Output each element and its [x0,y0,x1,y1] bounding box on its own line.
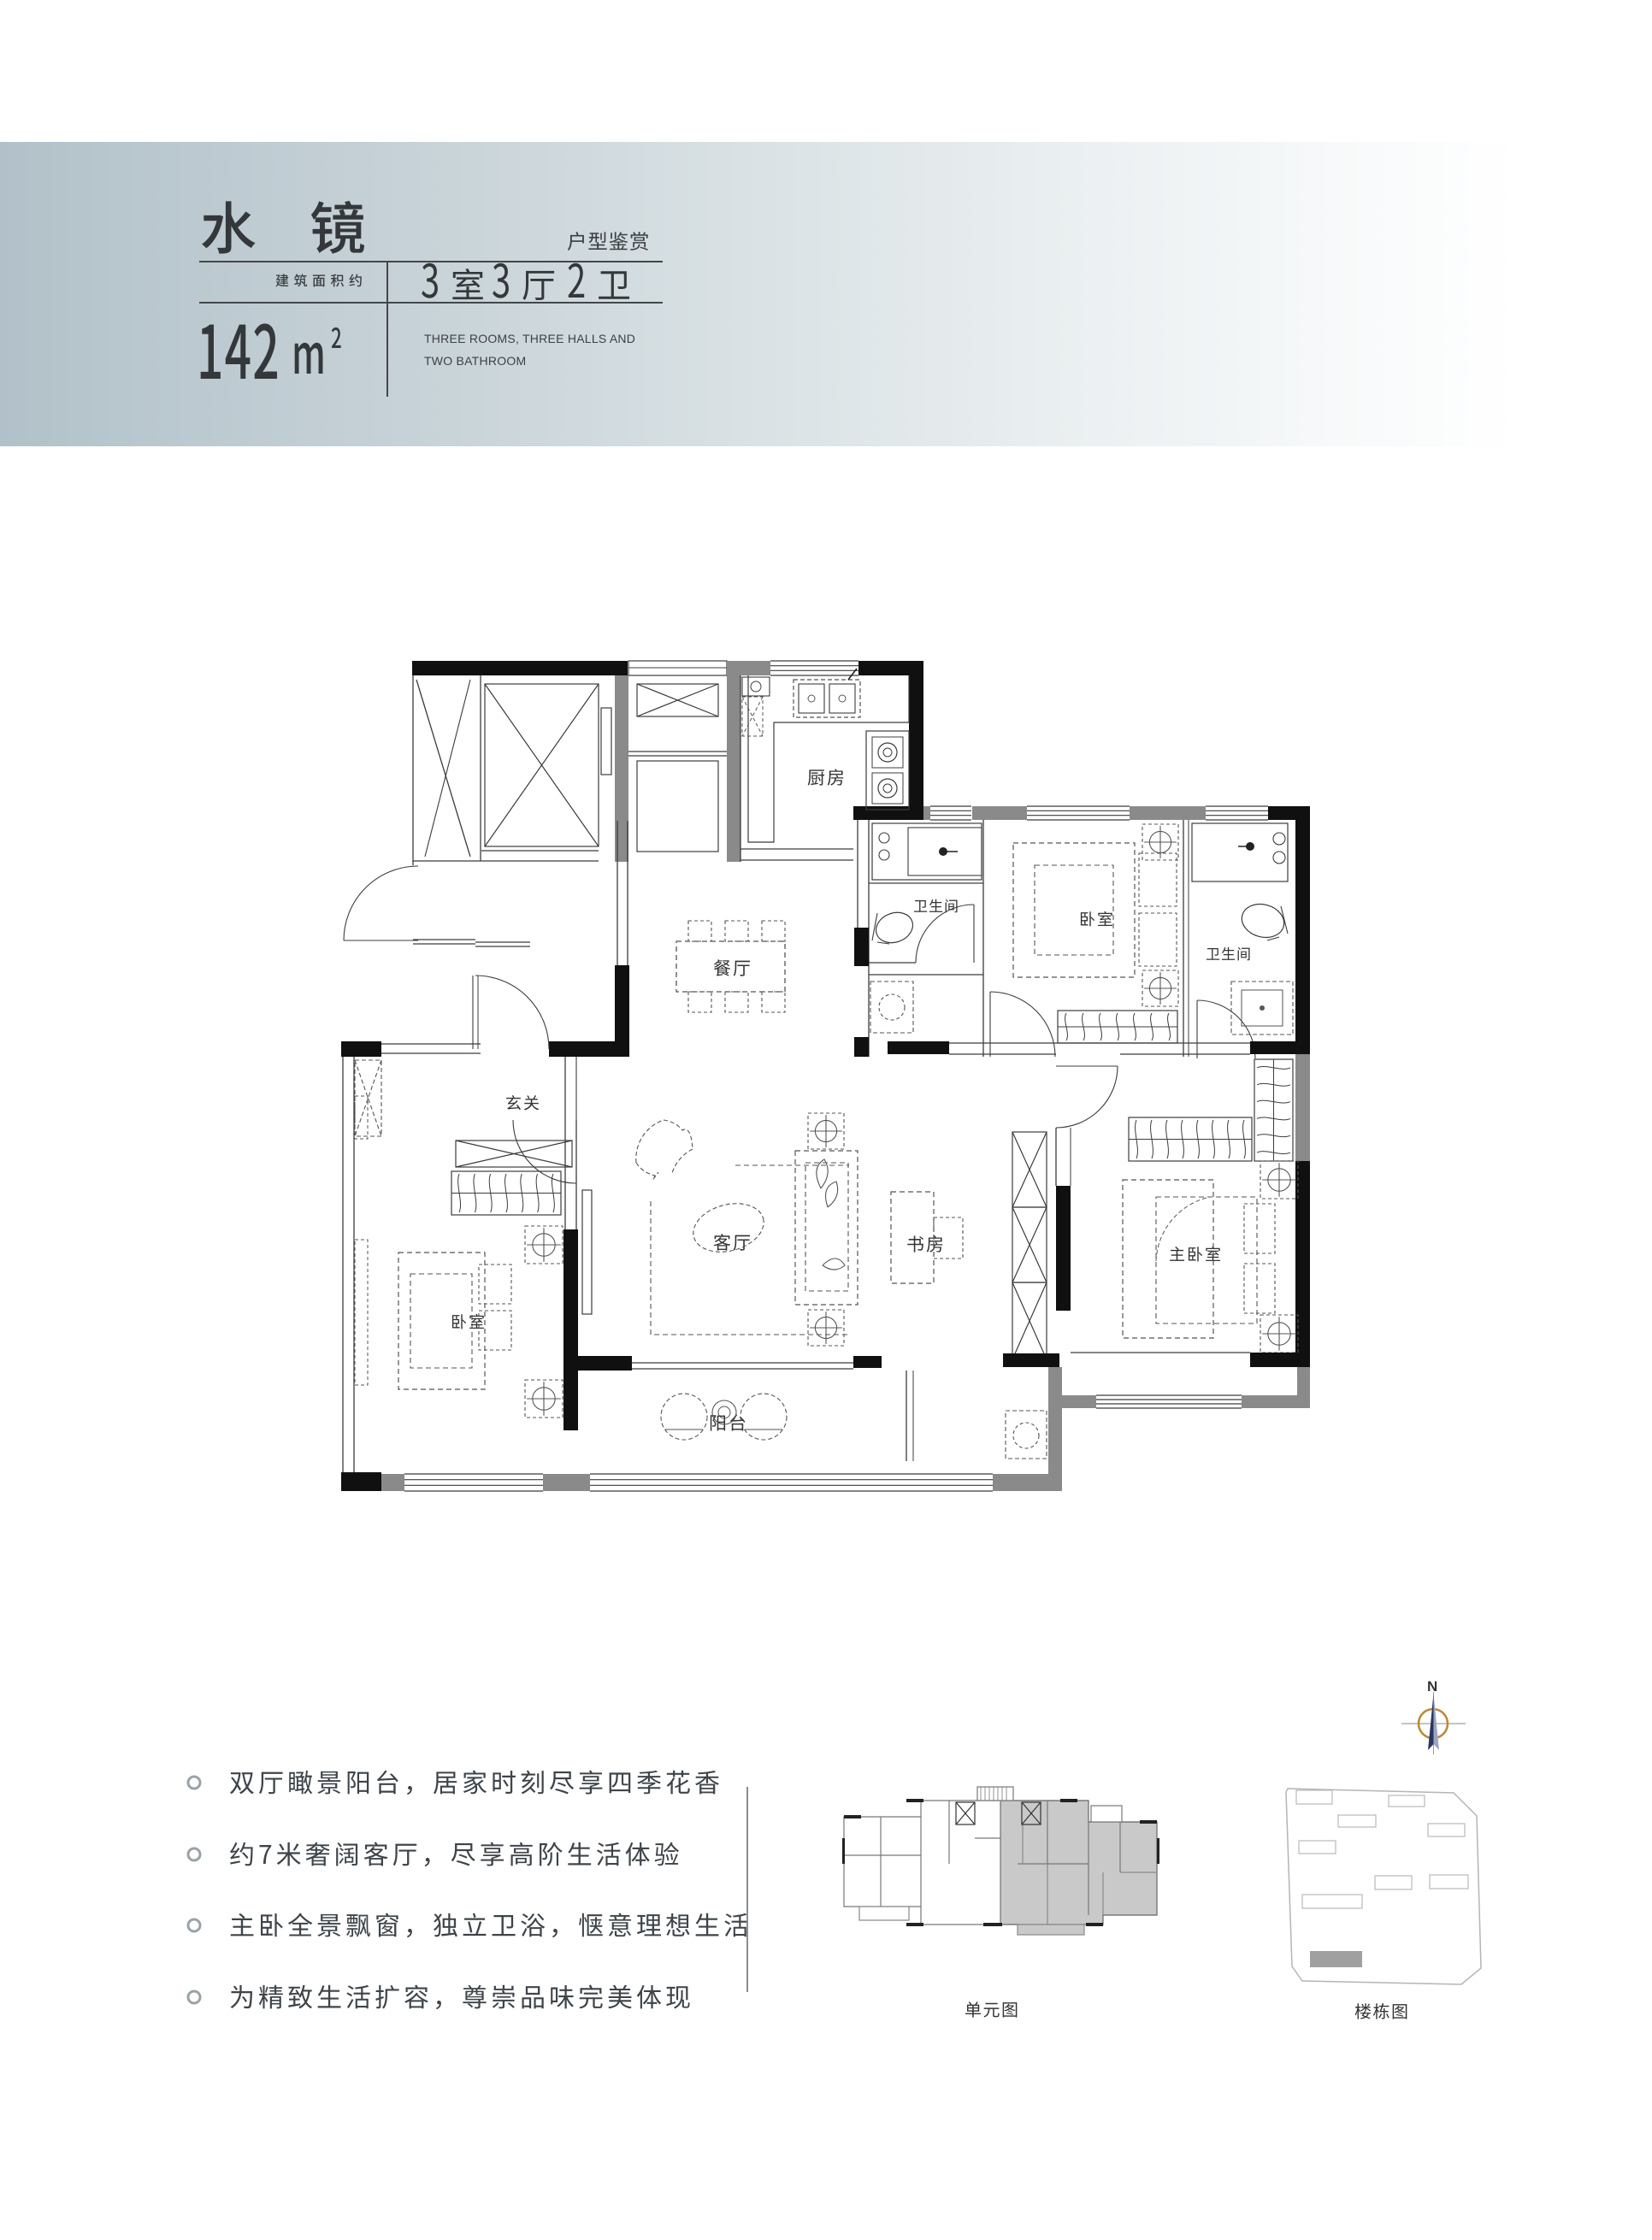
svg-text:TWO BATHROOM: TWO BATHROOM [424,354,526,368]
svg-text:N: N [1427,1678,1437,1695]
svg-text:THREE ROOMS, THREE HALLS AND: THREE ROOMS, THREE HALLS AND [424,332,635,345]
